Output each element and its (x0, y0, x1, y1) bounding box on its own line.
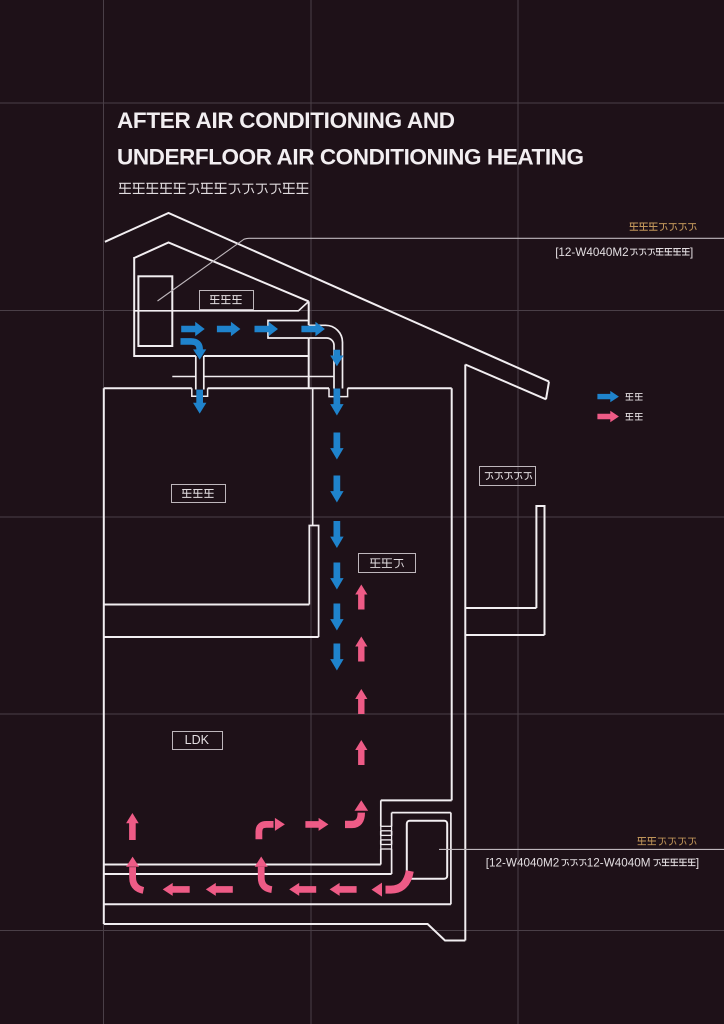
svg-text:]: ] (696, 856, 699, 869)
svg-text:]: ] (690, 246, 693, 259)
svg-text:12-W4040M: 12-W4040M (587, 856, 651, 869)
svg-text:[12-W4040M2: [12-W4040M2 (555, 246, 628, 259)
svg-text:LDK: LDK (185, 733, 210, 747)
svg-text:UNDERFLOOR AIR CONDITIONING HE: UNDERFLOOR AIR CONDITIONING HEATING (117, 145, 584, 170)
svg-text:[12-W4040M2: [12-W4040M2 (486, 856, 559, 869)
svg-text:AFTER AIR CONDITIONING AND: AFTER AIR CONDITIONING AND (117, 108, 455, 133)
